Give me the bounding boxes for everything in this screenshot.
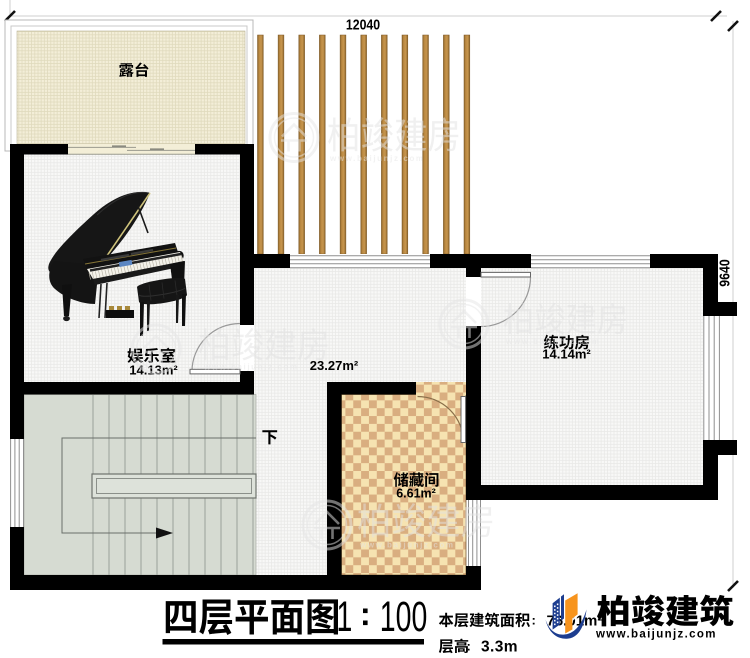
- svg-text::: :: [532, 613, 536, 628]
- svg-text:www.baijunjz.com: www.baijunjz.com: [329, 154, 425, 163]
- svg-text:9640: 9640: [717, 259, 733, 286]
- svg-text:6.61m²: 6.61m²: [396, 487, 436, 501]
- svg-text:www.baijunjz.com: www.baijunjz.com: [203, 363, 299, 372]
- svg-text:3.3m: 3.3m: [481, 639, 518, 656]
- svg-text:12040: 12040: [346, 17, 380, 33]
- svg-text:100: 100: [380, 592, 427, 640]
- svg-text:www.baijunjz.com: www.baijunjz.com: [505, 337, 601, 346]
- svg-text::: :: [467, 639, 471, 654]
- svg-text:14.14m²: 14.14m²: [542, 347, 591, 362]
- svg-text:www.baijunjz.com: www.baijunjz.com: [595, 629, 717, 641]
- svg-text:1: 1: [337, 592, 353, 640]
- svg-text:www.baijunjz.com: www.baijunjz.com: [359, 541, 455, 550]
- svg-text:23.27m²: 23.27m²: [310, 358, 359, 373]
